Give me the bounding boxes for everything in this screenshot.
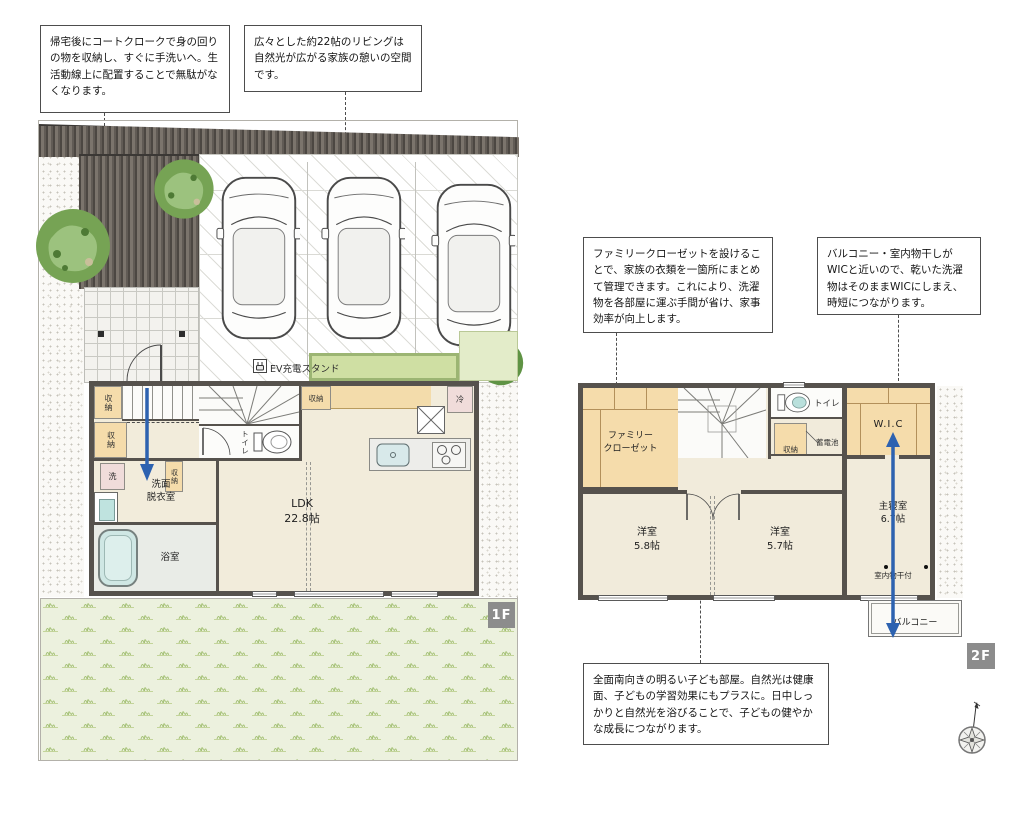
wall — [771, 454, 847, 456]
washroom-label: 洗面 脱衣室 — [120, 478, 202, 505]
family-closet-room: ファミリー クローゼット — [583, 388, 678, 487]
stove-icon — [432, 442, 466, 468]
car-icon — [216, 169, 300, 347]
closet-shelf — [583, 388, 678, 410]
stairs-main — [199, 386, 299, 424]
compass-icon — [950, 698, 998, 756]
storage-label: 収納 — [104, 394, 112, 412]
storage-label: 収納 — [107, 431, 115, 449]
bathtub-inner — [104, 535, 132, 581]
floorplan-page: 帰宅後にコートクロークで身の回りの物を収納し、すぐに手洗いへ。生活動線上に配置す… — [0, 0, 1024, 816]
car-icon — [431, 176, 515, 354]
callout-family-closet: ファミリークローゼットを設けることで、家族の衣類を一箇所にまとめて管理できます。… — [583, 237, 773, 333]
window — [783, 382, 805, 388]
parking-stall-line — [415, 162, 416, 375]
vanity-sink — [94, 492, 118, 524]
toilet-label: トイレ — [814, 397, 840, 409]
pantry-box-icon — [417, 406, 445, 434]
callout-living: 広々とした約22帖のリビングは自然光が広がる家族の憩いの空間です。 — [244, 25, 422, 92]
tree-icon — [33, 206, 113, 286]
storage-label: 収納 — [309, 393, 324, 404]
car-icon — [321, 169, 405, 347]
room2-label: 洋室 5.7帖 — [733, 526, 827, 554]
family-closet-label: ファミリー クローゼット — [585, 430, 676, 455]
stairs-fan-icon — [678, 388, 766, 458]
gravel-right — [479, 376, 518, 597]
window — [598, 595, 668, 601]
wall — [741, 490, 842, 494]
green-walkway — [459, 331, 518, 381]
gravel-right-2f — [937, 386, 963, 598]
kitchen-storage: 収納 — [301, 386, 331, 410]
leader-balcony-wic — [898, 315, 899, 381]
storage-closet: 収納 — [94, 386, 122, 419]
ldk-label: LDK 22.8帖 — [252, 496, 352, 527]
kitchen-counter — [331, 386, 431, 409]
stairs-2f — [678, 388, 766, 458]
porch-post — [179, 331, 185, 337]
callout-kids-room: 全面南向きの明るい子ども部屋。自然光は健康面、子どもの学習効果にもプラスに。日中… — [583, 663, 829, 745]
grass-pattern — [41, 599, 517, 760]
wall — [94, 458, 302, 461]
hall-dash-line — [127, 422, 199, 423]
floor1-badge: 1F — [488, 602, 515, 628]
storage-closet-2f: 収納 — [774, 423, 807, 456]
flow-arrow-1f — [139, 386, 155, 482]
wall — [216, 458, 219, 591]
ev-charger-icon — [253, 359, 267, 373]
toilet-icon — [777, 391, 813, 414]
toilet-icon — [253, 429, 295, 455]
toilet-label: トイレ — [241, 430, 249, 456]
sliding-partition — [710, 496, 711, 595]
room-door-arcs — [683, 492, 743, 528]
toilet-room-2f: トイレ — [771, 388, 842, 419]
refrigerator: 冷 — [447, 386, 473, 413]
callout-coat-cloak: 帰宅後にコートクロークで身の回りの物を収納し、すぐに手洗いへ。生活動線上に配置す… — [40, 25, 230, 113]
stairs-fan-icon — [199, 386, 299, 424]
sink-basin — [99, 499, 115, 521]
closet-shelf-divider — [888, 388, 889, 404]
wic-label: W.I.C — [847, 418, 930, 432]
ev-station-label: EV充電スタンド — [270, 361, 340, 375]
window — [391, 591, 438, 597]
closet-shelf-divider — [614, 388, 615, 410]
window — [713, 595, 775, 601]
wall — [842, 455, 847, 595]
bathroom-label: 浴室 — [140, 551, 200, 564]
parking-stall-line — [307, 162, 308, 375]
wall — [583, 490, 687, 494]
washer-label: 洗 — [109, 471, 117, 482]
closet-shelf-divider — [646, 388, 647, 410]
slope-band-top — [39, 124, 519, 157]
sliding-partition — [714, 496, 715, 595]
battery-label: 蓄電池 — [816, 437, 839, 448]
flow-arrow-2f — [884, 431, 902, 639]
floor1-plan: EV充電スタンド 収納 収納 — [38, 120, 518, 761]
door-arc-icon — [201, 427, 231, 457]
window — [294, 591, 384, 597]
toilet-room: トイレ — [199, 426, 299, 458]
room1-label: 洋室 5.8帖 — [601, 526, 693, 554]
wall — [847, 455, 885, 459]
drying-hook-dot — [924, 565, 928, 569]
floor2-badge: 2F — [967, 643, 995, 669]
porch-post — [98, 331, 104, 337]
kitchen-island — [369, 438, 471, 471]
storage-closet: 収納 — [94, 422, 127, 458]
bathroom: 浴室 — [94, 525, 216, 591]
balcony-label: バルコニー — [869, 617, 961, 630]
tree-icon — [152, 157, 216, 221]
fridge-label: 冷 — [456, 394, 464, 405]
balcony: バルコニー — [868, 600, 962, 637]
entrance-door-arc — [125, 343, 163, 383]
floor2-plan: ファミリー クローゼット — [578, 383, 935, 600]
callout-balcony-wic: バルコニー・室内物干しがWICと近いので、乾いた洗濯物はそのままWICにしまえ、… — [817, 237, 981, 315]
bathtub — [98, 529, 138, 587]
lawn — [40, 598, 518, 761]
stairs-lower — [122, 386, 199, 421]
wall — [899, 455, 930, 459]
window — [252, 591, 277, 597]
kitchen-sink-icon — [376, 443, 410, 467]
